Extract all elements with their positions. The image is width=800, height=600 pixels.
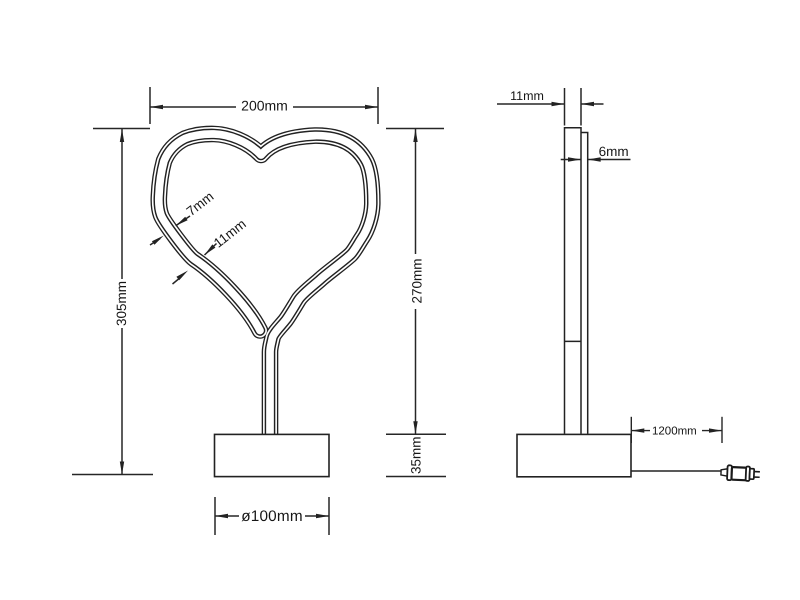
svg-text:11mm: 11mm (510, 89, 544, 103)
svg-text:ø100mm: ø100mm (241, 508, 303, 525)
svg-text:35mm: 35mm (409, 437, 424, 475)
svg-text:270mm: 270mm (410, 258, 425, 303)
svg-text:305mm: 305mm (114, 281, 129, 326)
svg-text:200mm: 200mm (241, 98, 288, 114)
svg-text:6mm: 6mm (599, 144, 629, 159)
svg-text:1200mm: 1200mm (652, 426, 697, 438)
